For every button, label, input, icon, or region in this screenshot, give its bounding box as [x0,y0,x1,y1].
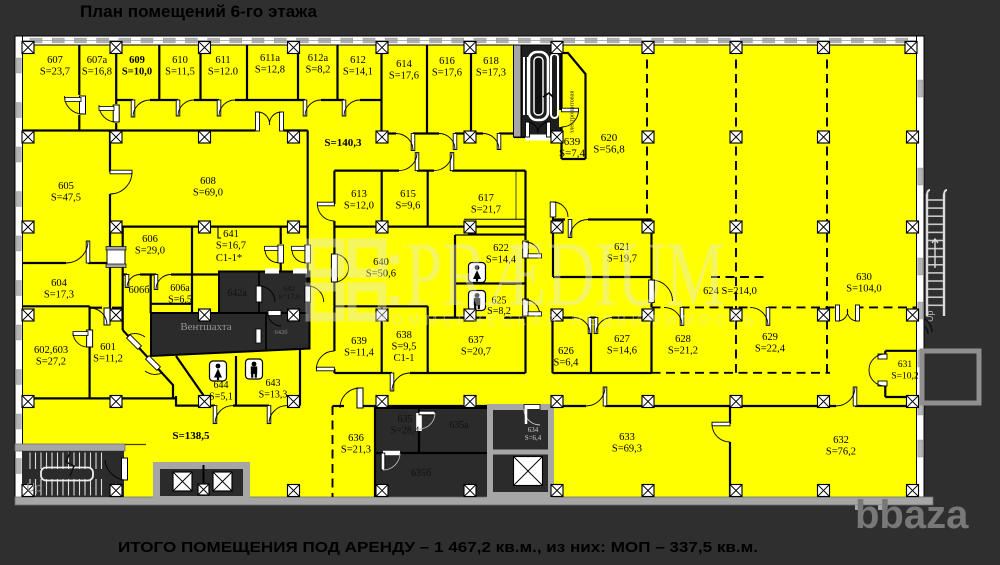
svg-text:S=12,0: S=12,0 [344,201,374,212]
svg-text:S=28,4: S=28,4 [391,426,420,437]
svg-text:612: 612 [350,55,366,66]
svg-text:S=14,6: S=14,6 [607,346,637,357]
svg-text:620: 620 [601,132,618,144]
svg-text:C1-1*: C1-1* [216,253,242,264]
svg-text:S=17,6: S=17,6 [389,71,419,82]
svg-text:PRÆDIUM: PRÆDIUM [405,223,725,325]
svg-text:616: 616 [439,56,455,67]
svg-text:S=7,4: S=7,4 [559,148,586,160]
svg-text:S=23,7: S=23,7 [40,67,70,78]
svg-text:S=17,3: S=17,3 [44,290,74,301]
svg-text:S=13,3: S=13,3 [259,390,288,401]
svg-text:606б: 606б [128,285,149,296]
svg-text:S=27,2: S=27,2 [36,357,66,368]
svg-text:S=16,8: S=16,8 [82,67,112,78]
svg-text:S=47,5: S=47,5 [51,193,81,204]
svg-text:S=22,4: S=22,4 [755,344,786,355]
svg-text:электрощитовая: электрощитовая [569,91,576,134]
svg-text:S=8,2: S=8,2 [306,65,331,76]
svg-text:S=14,1: S=14,1 [343,67,373,78]
svg-text:618: 618 [483,56,499,67]
svg-text:ИТОГО ПОМЕЩЕНИЯ ПОД АРЕНДУ – 1: ИТОГО ПОМЕЩЕНИЯ ПОД АРЕНДУ – 1 467,2 кв.… [118,539,758,556]
svg-text:635б: 635б [411,468,431,479]
svg-text:635: 635 [398,414,413,425]
svg-text:S=21,7: S=21,7 [471,205,501,216]
svg-text:S=9,6: S=9,6 [396,201,421,212]
svg-text:612а: 612а [308,53,329,64]
svg-text:S=17,6: S=17,6 [432,68,462,79]
svg-text:C1-1: C1-1 [394,353,415,364]
svg-text:633: 633 [619,432,635,443]
svg-text:S=17,3: S=17,3 [476,68,506,79]
svg-text:S=21,3: S=21,3 [341,445,371,456]
svg-text:S=10,2: S=10,2 [891,372,919,382]
svg-text:626: 626 [558,346,574,357]
svg-text:S=29,0: S=29,0 [135,246,165,257]
svg-text:641: 641 [223,229,239,240]
svg-text:S=6,4: S=6,4 [554,358,580,369]
svg-text:644: 644 [214,380,229,391]
svg-text:606: 606 [142,234,158,245]
svg-text:636: 636 [348,433,364,444]
svg-text:632: 632 [833,435,849,446]
svg-text:607: 607 [47,55,63,66]
svg-text:S=17,8: S=17,8 [278,292,300,301]
svg-text:S=12,8: S=12,8 [255,65,285,76]
svg-text:S=6,4: S=6,4 [525,434,542,442]
svg-text:605: 605 [58,181,74,192]
svg-text:S=140,3: S=140,3 [324,137,362,149]
svg-text:S=76,2: S=76,2 [826,447,856,458]
svg-text:601: 601 [100,342,116,353]
svg-text:S=11,5: S=11,5 [165,67,195,78]
svg-text:602,603: 602,603 [34,345,68,356]
svg-text:S=11,2: S=11,2 [93,354,123,365]
svg-text:638: 638 [396,330,412,341]
svg-text:629: 629 [762,332,778,343]
svg-text:S=11,4: S=11,4 [344,348,374,359]
svg-text:635а: 635а [449,420,469,431]
svg-text:631: 631 [898,360,913,370]
svg-text:610: 610 [172,55,188,66]
svg-text:634: 634 [528,426,539,434]
svg-text:План помещений 6-го этажа: План помещений 6-го этажа [80,3,318,21]
svg-text:637: 637 [468,335,484,346]
svg-text:628: 628 [675,334,691,345]
svg-text:S=21,2: S=21,2 [668,346,698,357]
svg-text:S=9,5: S=9,5 [392,342,417,353]
svg-text:S=56,8: S=56,8 [593,144,625,156]
svg-text:627: 627 [614,334,630,345]
svg-text:S=6,5: S=6,5 [168,295,192,306]
svg-text:643: 643 [266,378,281,389]
svg-text:606а: 606а [170,283,190,294]
svg-text:S=12.0: S=12.0 [208,67,238,78]
svg-text:611: 611 [215,55,230,66]
svg-text:S=69,0: S=69,0 [193,188,223,199]
svg-text:609: 609 [129,55,145,66]
svg-text:639: 639 [351,336,367,347]
svg-text:611а: 611а [260,53,280,64]
svg-text:S=16,7: S=16,7 [216,241,246,252]
svg-text:КОММЕРЧЕСКАЯ НЕДВИЖИМОСТЬ: КОММЕРЧЕСКАЯ НЕДВИЖИМОСТЬ [378,313,759,329]
svg-text:613: 613 [351,189,367,200]
svg-text:614: 614 [396,59,413,70]
svg-text:607а: 607а [87,55,108,66]
svg-text:bbaza: bbaza [855,493,969,537]
svg-text:604: 604 [51,278,68,289]
svg-text:639: 639 [564,136,581,148]
svg-text:617: 617 [478,193,494,204]
svg-text:S=104,0: S=104,0 [846,284,881,295]
svg-text:615: 615 [400,189,416,200]
svg-text:630: 630 [856,272,872,283]
svg-text:642б: 642б [274,329,288,336]
svg-text:Up: Up [26,481,42,495]
svg-text:S=138,5: S=138,5 [172,430,210,442]
svg-text:S=5,1: S=5,1 [209,392,233,403]
svg-text:S=10,0: S=10,0 [122,67,152,78]
svg-text:S=20,7: S=20,7 [461,347,491,358]
svg-text:642a: 642a [227,288,247,299]
svg-text:608: 608 [200,176,216,187]
svg-text:S=69,3: S=69,3 [612,444,642,455]
svg-text:Вентшахта: Вентшахта [180,321,231,333]
